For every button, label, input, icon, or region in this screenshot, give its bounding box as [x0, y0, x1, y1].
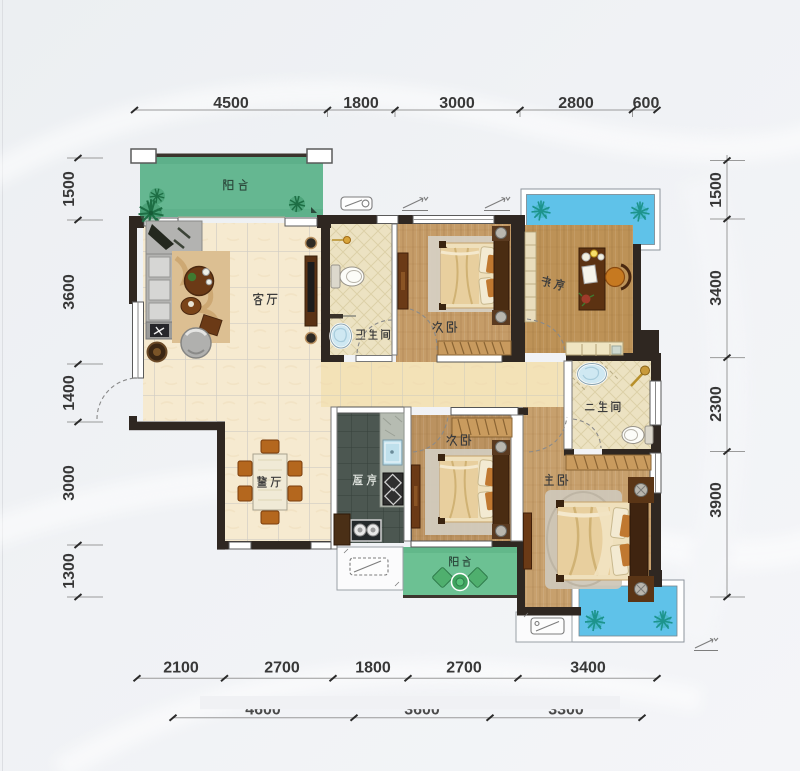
svg-text:1500: 1500 — [708, 172, 725, 208]
svg-text:3900: 3900 — [708, 482, 725, 518]
svg-text:4500: 4500 — [213, 95, 249, 112]
svg-text:1500: 1500 — [61, 171, 78, 207]
svg-text:1300: 1300 — [61, 553, 78, 589]
svg-text:2100: 2100 — [163, 660, 199, 677]
svg-text:1800: 1800 — [355, 660, 391, 677]
svg-text:1400: 1400 — [61, 375, 78, 411]
svg-text:2700: 2700 — [264, 660, 300, 677]
svg-text:2700: 2700 — [446, 660, 482, 677]
svg-text:2300: 2300 — [708, 386, 725, 422]
svg-text:3400: 3400 — [570, 660, 606, 677]
svg-text:600: 600 — [633, 95, 660, 112]
svg-text:3600: 3600 — [61, 274, 78, 310]
svg-text:3000: 3000 — [61, 465, 78, 501]
svg-text:1800: 1800 — [343, 95, 379, 112]
svg-text:3400: 3400 — [708, 270, 725, 306]
svg-text:2800: 2800 — [558, 95, 594, 112]
svg-text:3000: 3000 — [439, 95, 475, 112]
